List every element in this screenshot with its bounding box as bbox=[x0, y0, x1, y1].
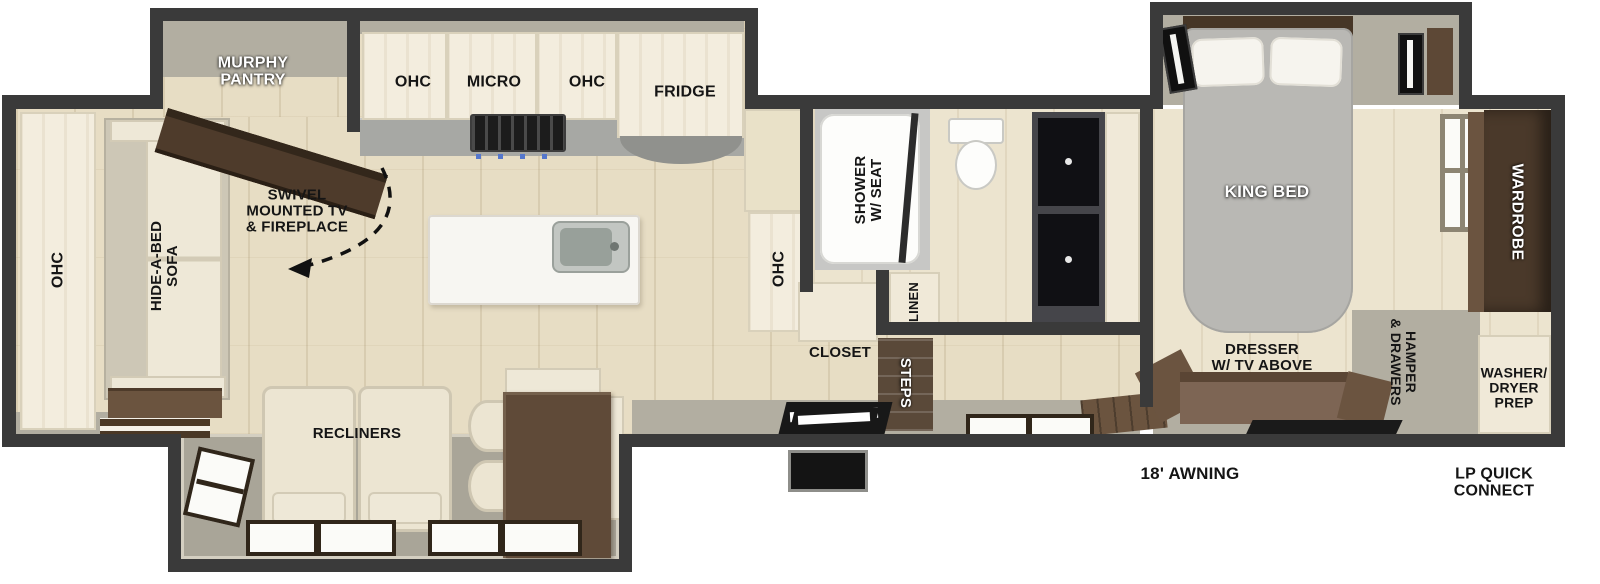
awning-label: 18' AWNING bbox=[1141, 465, 1240, 483]
wall-bath-bottom bbox=[876, 322, 1153, 335]
slide-window-1 bbox=[246, 520, 396, 556]
entry-step bbox=[788, 450, 868, 492]
sofa-label: HIDE-A-BED SOFA bbox=[149, 221, 181, 311]
vanity-faucet-bottom bbox=[1065, 256, 1072, 263]
pillow-right bbox=[1269, 37, 1343, 87]
wall-bottom-main bbox=[619, 434, 1565, 447]
closet-label: CLOSET bbox=[809, 345, 871, 361]
steps-label: STEPS bbox=[897, 358, 913, 408]
lp-quick-connect-label: LP QUICK CONNECT bbox=[1454, 466, 1535, 501]
wall-bedslide-right bbox=[1459, 2, 1472, 109]
dresser-label: DRESSER W/ TV ABOVE bbox=[1212, 342, 1313, 374]
vanity-faucet-top bbox=[1065, 158, 1072, 165]
wall-kitchen-right bbox=[745, 8, 758, 109]
wall-pantry-top bbox=[150, 8, 360, 21]
toilet-bowl bbox=[955, 140, 997, 190]
wall-top-right bbox=[1459, 95, 1565, 109]
wall-slide-bottom bbox=[168, 559, 632, 572]
kitchen-ohc-right-label: OHC bbox=[569, 73, 605, 90]
sofa-end-table bbox=[108, 388, 222, 418]
slide-window-2 bbox=[428, 520, 582, 556]
vanity-side-panel bbox=[1105, 112, 1140, 325]
column-ohc-label: OHC bbox=[770, 251, 787, 287]
stove bbox=[470, 114, 566, 152]
wall-bed-bath-divider bbox=[1140, 95, 1153, 407]
wall-bedslide-left bbox=[1150, 2, 1163, 109]
wall-right bbox=[1551, 95, 1565, 447]
stove-knobs bbox=[476, 154, 560, 159]
swivel-tv-note: SWIVEL MOUNTED TV & FIREPLACE bbox=[246, 188, 348, 237]
dinette-chair-1 bbox=[468, 400, 506, 452]
wall-slide-left bbox=[168, 434, 181, 572]
wall-bedslide-top bbox=[1150, 2, 1472, 15]
slide-window-1-mullion bbox=[314, 522, 321, 554]
washer-label: WASHER/ DRYER PREP bbox=[1481, 365, 1548, 410]
micro-label: MICRO bbox=[467, 73, 521, 90]
wall-kitchen-top bbox=[347, 8, 758, 21]
front-window-mullion-v bbox=[1460, 117, 1465, 229]
dresser bbox=[1180, 372, 1348, 424]
linen-label: LINEN bbox=[907, 282, 921, 322]
shower-label: SHOWER W/ SEAT bbox=[853, 156, 885, 225]
wall-pantry-left bbox=[150, 8, 163, 109]
bedroom-window-right-glass bbox=[1407, 40, 1413, 88]
wardrobe-door bbox=[1468, 112, 1484, 312]
island-faucet bbox=[610, 242, 619, 251]
murphy-pantry-label: MURPHY PANTRY bbox=[218, 55, 289, 90]
recliners-label: RECLINERS bbox=[313, 426, 401, 442]
kitchen-ohc-left-label: OHC bbox=[395, 73, 431, 90]
floorplan-canvas: OHC HIDE-A-BED SOFA MURPHY PANTRY SWIVEL… bbox=[0, 0, 1600, 584]
wall-slide-right bbox=[619, 434, 632, 572]
wall-linen-stub bbox=[876, 270, 889, 335]
wall-top-left bbox=[2, 95, 162, 109]
wall-bottom-left bbox=[2, 434, 181, 447]
fridge-label: FRIDGE bbox=[654, 83, 716, 100]
hamper-label: HAMPER & DRAWERS bbox=[1388, 318, 1418, 405]
wall-pantry-kitchen-divider bbox=[347, 8, 360, 132]
wall-bath-left bbox=[800, 95, 813, 292]
wardrobe-label: WARDROBE bbox=[1508, 164, 1525, 261]
king-bed-label: KING BED bbox=[1225, 183, 1310, 201]
slide-window-2-mullion bbox=[498, 522, 505, 554]
island-sink-basin bbox=[560, 228, 612, 266]
bedside-cabinet bbox=[1427, 28, 1453, 95]
wall-left bbox=[2, 95, 16, 447]
pillow-left bbox=[1191, 37, 1265, 87]
left-ohc-label: OHC bbox=[49, 252, 66, 288]
dinette-chair-2 bbox=[468, 460, 506, 512]
